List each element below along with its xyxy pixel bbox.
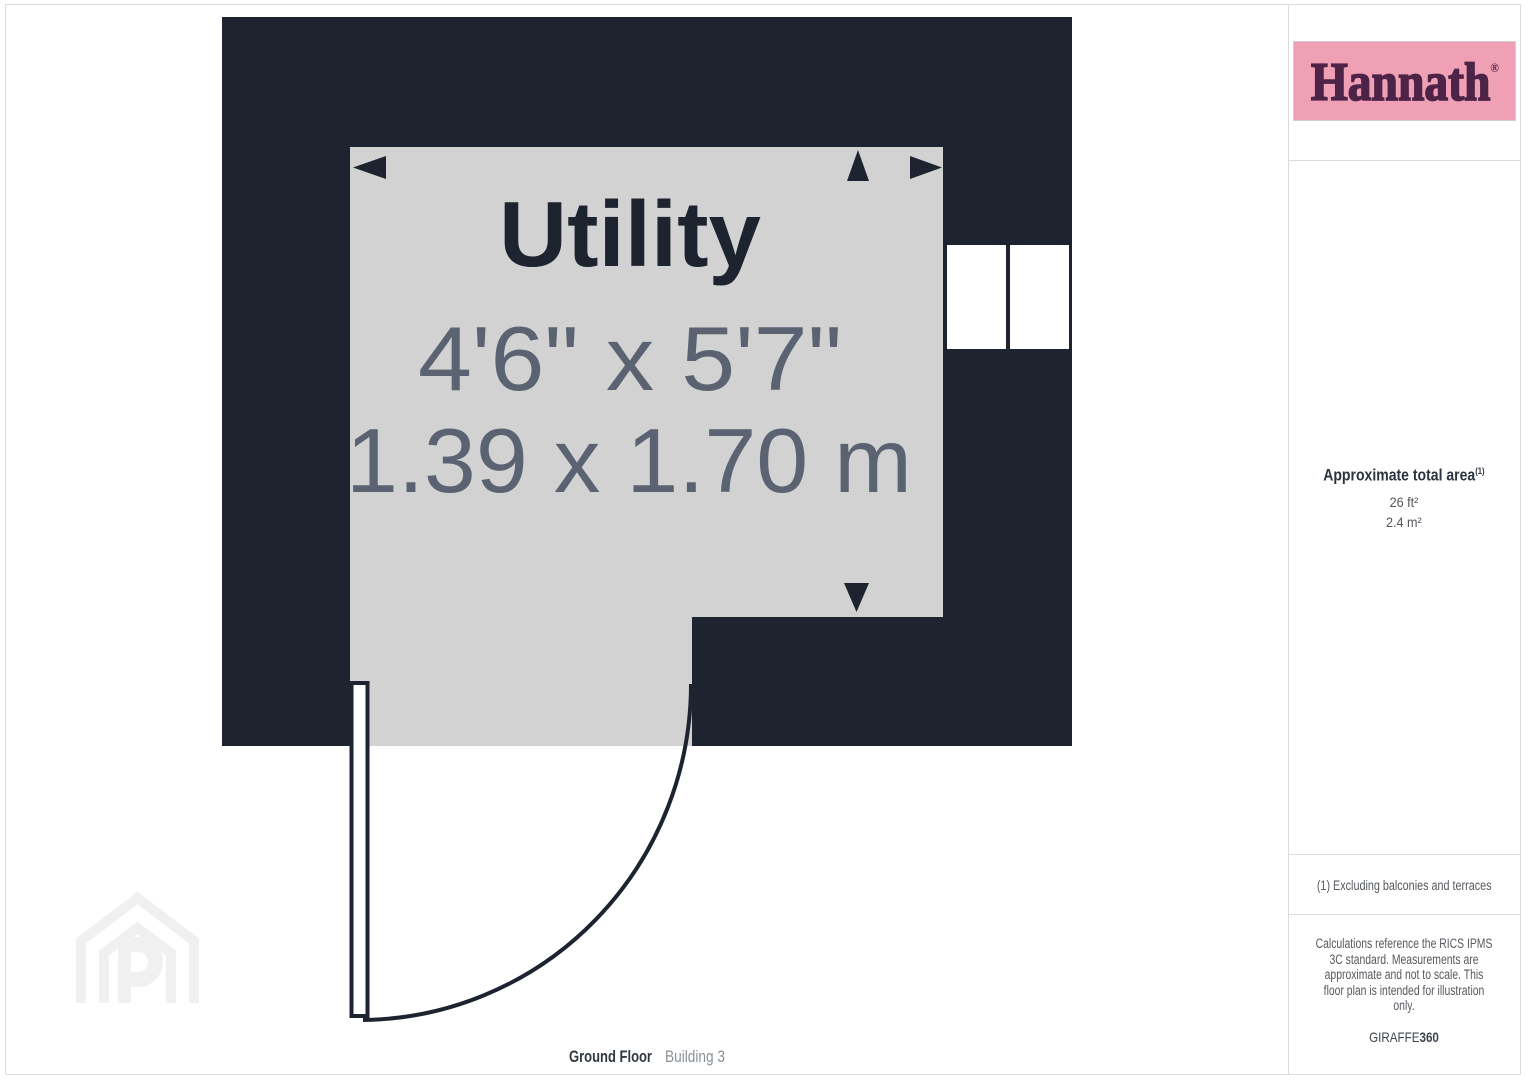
svg-text:Building 3: Building 3	[665, 1048, 725, 1066]
svg-text:Ground Floor: Ground Floor	[569, 1048, 652, 1066]
svg-text:1.39 x 1.70 m: 1.39 x 1.70 m	[346, 411, 912, 512]
svg-text:4'6" x 5'7": 4'6" x 5'7"	[418, 309, 842, 410]
svg-text:Utility: Utility	[499, 182, 761, 286]
